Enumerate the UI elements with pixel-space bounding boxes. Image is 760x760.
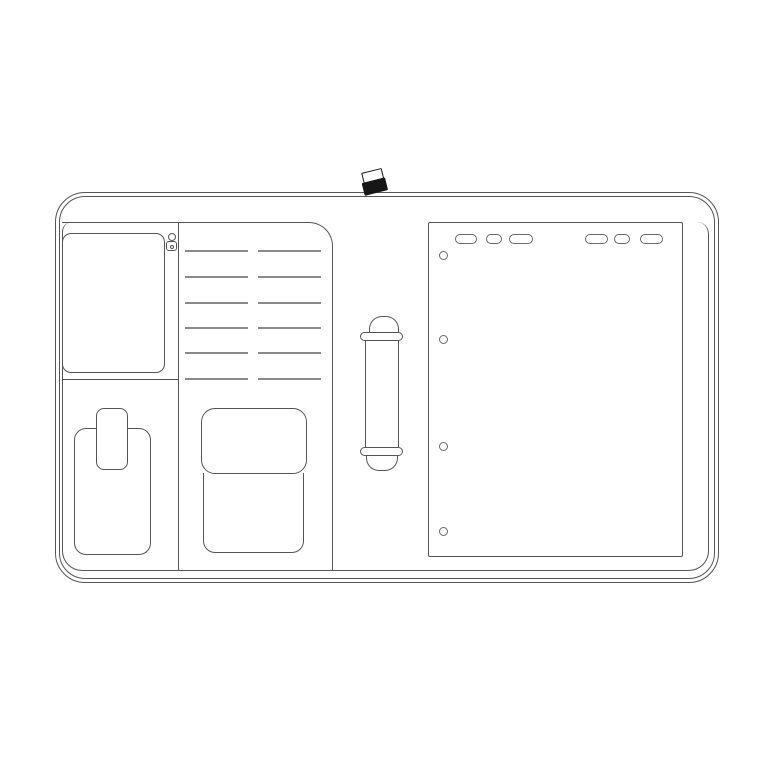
card-slot-line (185, 378, 248, 380)
notepad (428, 222, 683, 557)
card-slot-line (258, 250, 321, 252)
retainer-strap (96, 408, 128, 470)
binder-hole (439, 335, 448, 344)
pen-body (365, 336, 399, 452)
card-slot-line (185, 352, 248, 354)
notepad-index-tab (509, 234, 533, 244)
card-slot-line (258, 302, 321, 304)
notepad-index-tab (486, 234, 502, 244)
zipper-slider-hole (170, 245, 174, 249)
left-column-divider (62, 379, 179, 380)
binder-hole (439, 442, 448, 451)
flap-pocket-flap (201, 408, 307, 474)
card-slot-line (185, 302, 248, 304)
notepad-index-tab (585, 234, 608, 244)
zip-card-pocket (62, 233, 165, 373)
flap-pocket-body (203, 473, 304, 553)
pen-loop-upper-band (360, 332, 403, 341)
notepad-index-tab (640, 234, 663, 244)
card-slot-line (185, 250, 248, 252)
binder-hole (439, 527, 448, 536)
notepad-index-tab (455, 234, 477, 244)
pen-loop-lower-band (360, 447, 403, 456)
notepad-index-tab (614, 234, 630, 244)
organizer-illustration (0, 0, 760, 760)
zipper-pull-icon (168, 233, 176, 241)
card-slot-line (185, 276, 248, 278)
card-slot-line (258, 352, 321, 354)
card-slot-line (258, 378, 321, 380)
card-slot-line (258, 276, 321, 278)
card-slot-line (185, 327, 248, 329)
binder-hole (439, 251, 448, 260)
card-slot-line (258, 327, 321, 329)
